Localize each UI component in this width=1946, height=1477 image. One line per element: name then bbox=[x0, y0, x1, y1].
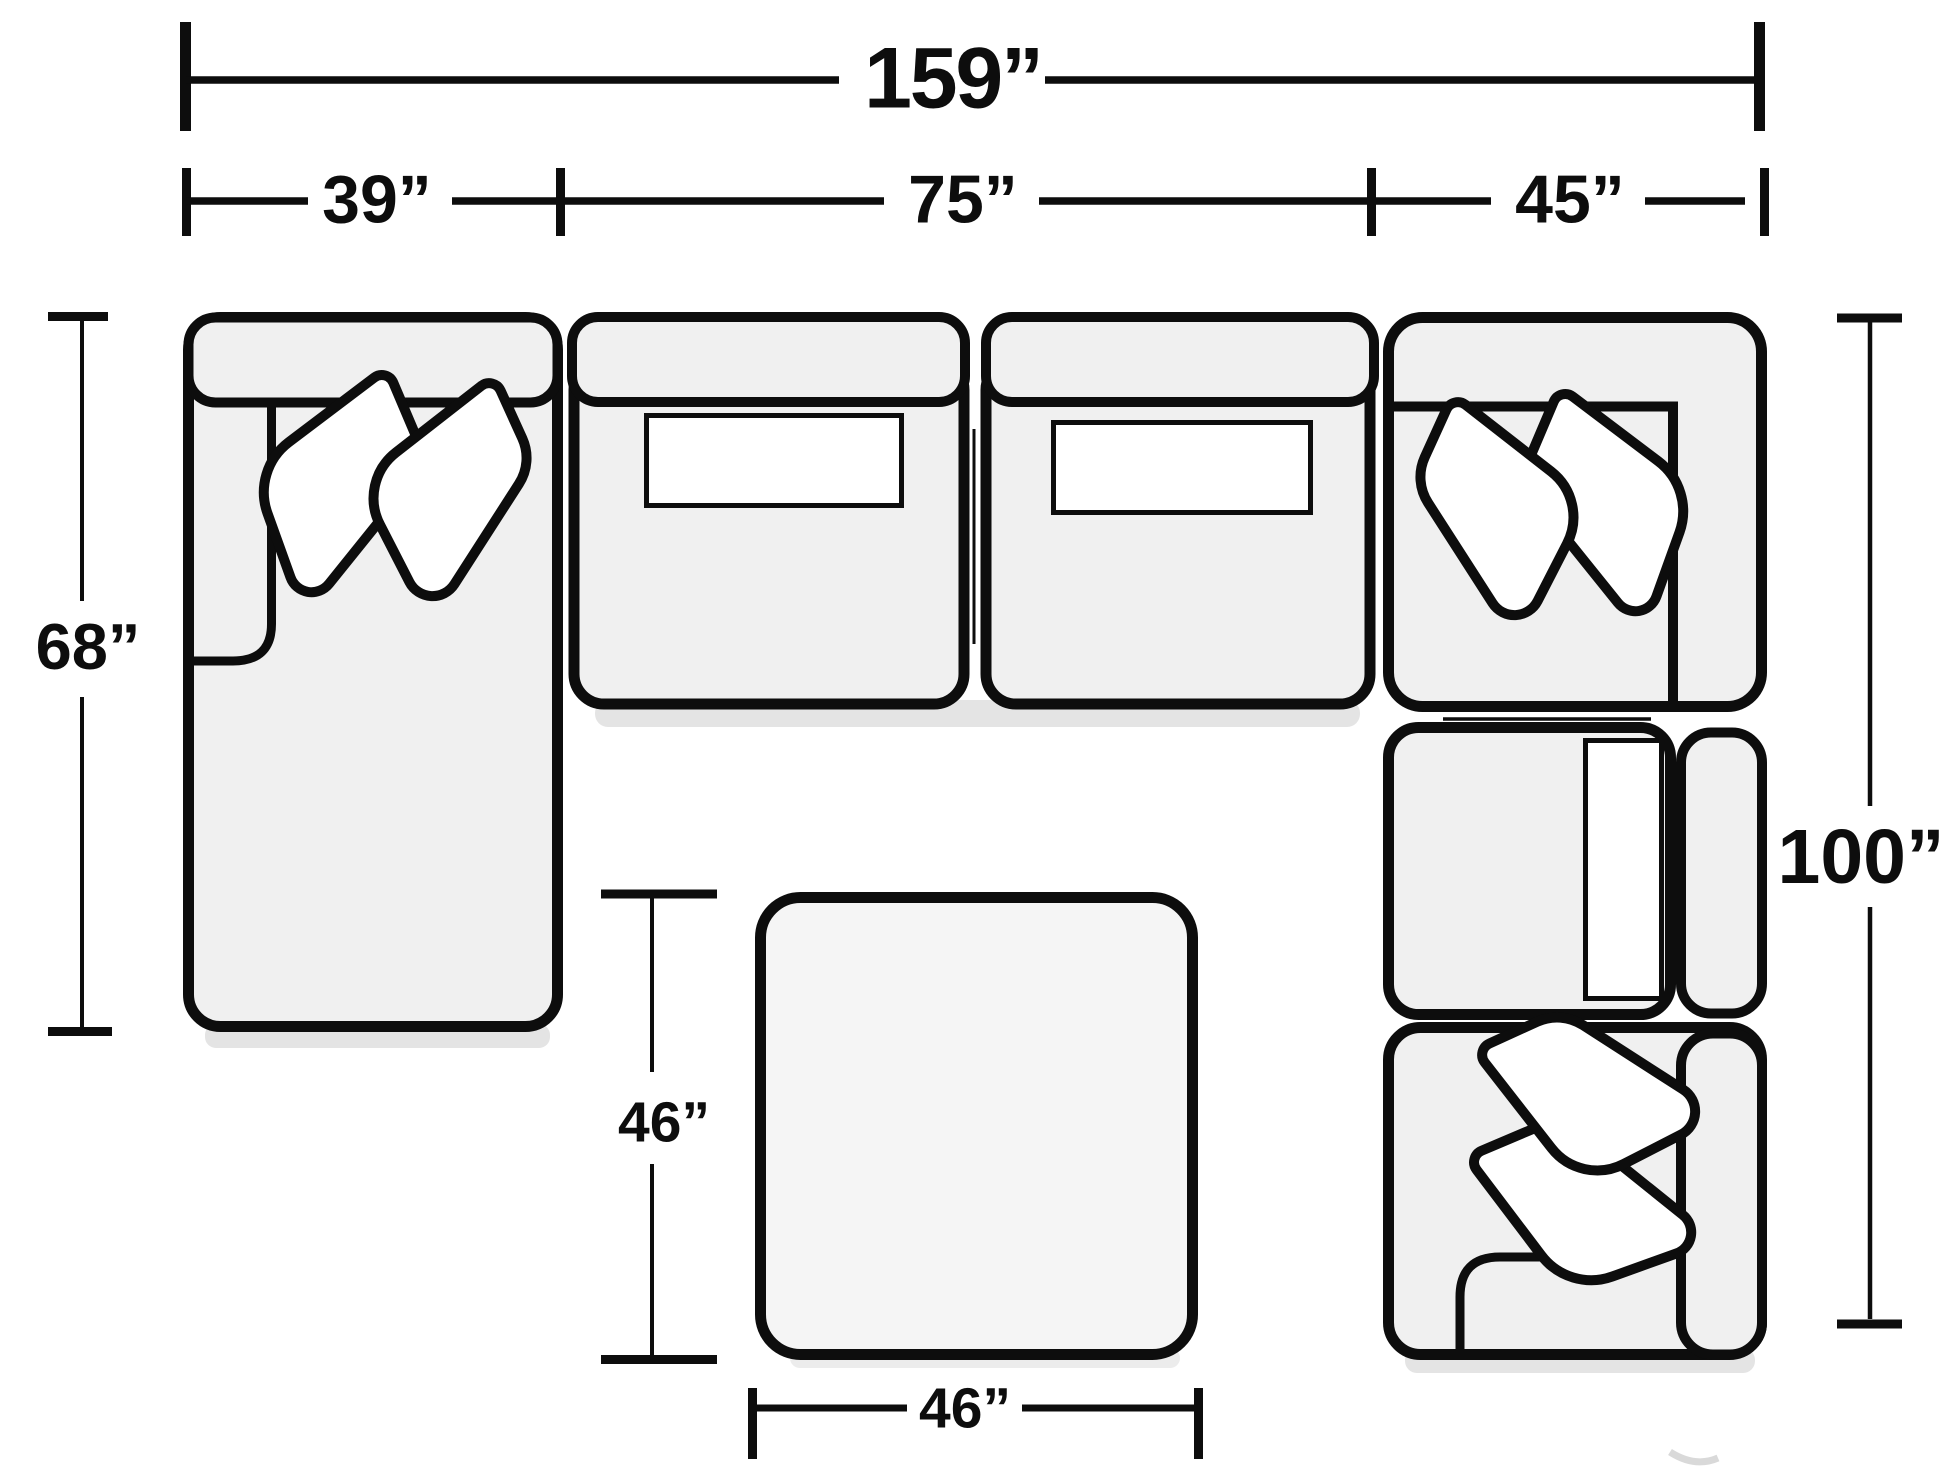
svg-text:46”: 46” bbox=[919, 1377, 1011, 1441]
svg-text:46”: 46” bbox=[618, 1091, 710, 1155]
svg-text:39”: 39” bbox=[322, 162, 432, 238]
svg-text:100”: 100” bbox=[1778, 814, 1945, 900]
svg-text:159”: 159” bbox=[864, 31, 1042, 127]
svg-text:68”: 68” bbox=[36, 610, 141, 683]
svg-text:75”: 75” bbox=[908, 162, 1018, 238]
svg-text:45”: 45” bbox=[1515, 162, 1625, 238]
